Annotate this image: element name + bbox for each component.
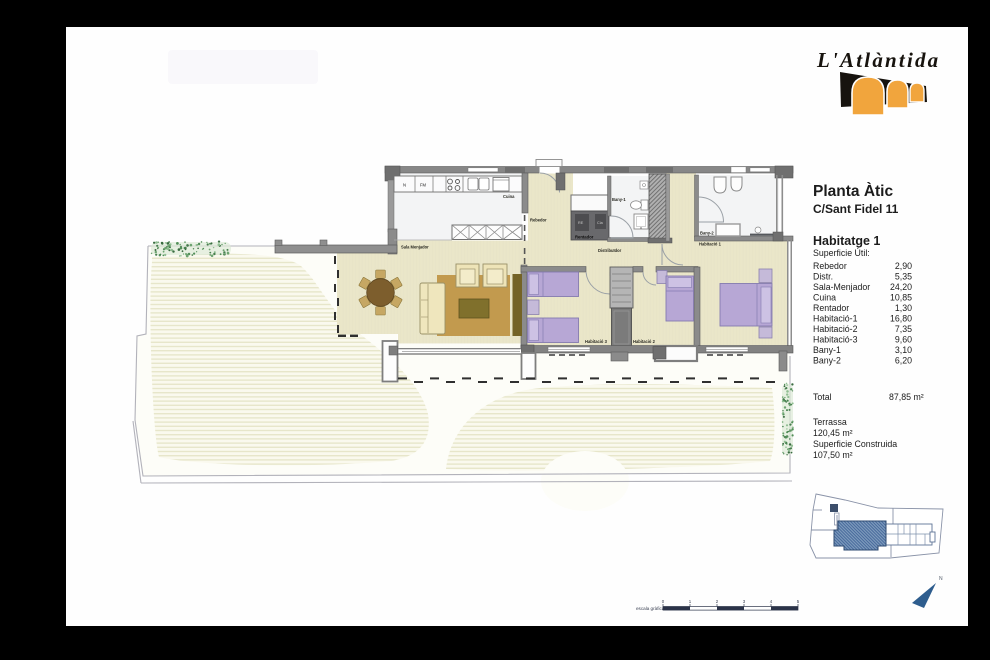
svg-text:1,30: 1,30 [895, 303, 912, 313]
svg-text:Cuina: Cuina [503, 194, 515, 199]
svg-text:6,20: 6,20 [895, 356, 912, 366]
svg-text:Cuina: Cuina [813, 293, 836, 303]
svg-text:107,50 m²: 107,50 m² [813, 450, 853, 460]
svg-text:Superficie Construida: Superficie Construida [813, 439, 897, 449]
svg-text:Rentador: Rentador [575, 235, 594, 240]
svg-text:N: N [939, 576, 943, 582]
svg-text:Planta Àtic: Planta Àtic [813, 183, 893, 200]
svg-text:Habitació-2: Habitació-2 [813, 324, 858, 334]
svg-text:N: N [403, 183, 406, 188]
svg-text:Habitació 1: Habitació 1 [699, 242, 722, 247]
svg-text:Rebedor: Rebedor [813, 261, 847, 271]
svg-text:2,90: 2,90 [895, 261, 912, 271]
svg-text:16,80: 16,80 [890, 314, 912, 324]
svg-text:87,85 m²: 87,85 m² [889, 392, 924, 402]
svg-text:C/Sant Fidel 11: C/Sant Fidel 11 [813, 202, 899, 216]
svg-text:5,35: 5,35 [895, 272, 912, 282]
svg-text:Cia: Cia [597, 221, 604, 225]
svg-text:escala gràfica: escala gràfica [636, 606, 665, 611]
svg-text:Sala-Menjador: Sala-Menjador [813, 282, 870, 292]
svg-text:Habitatge 1: Habitatge 1 [813, 234, 880, 248]
svg-text:Habitació-1: Habitació-1 [813, 314, 858, 324]
svg-text:Bany-2: Bany-2 [813, 356, 841, 366]
svg-text:Distr.: Distr. [813, 272, 833, 282]
svg-text:3,10: 3,10 [895, 345, 912, 355]
svg-text:Habitació-3: Habitació-3 [813, 335, 858, 345]
svg-text:Total: Total [813, 392, 832, 402]
svg-text:L'Atlàntida: L'Atlàntida [816, 48, 940, 72]
svg-text:Terrassa: Terrassa [813, 417, 847, 427]
svg-text:Superficie Útil:: Superficie Útil: [813, 248, 870, 258]
svg-text:RE: RE [578, 221, 584, 225]
svg-text:Rebedor: Rebedor [530, 218, 547, 223]
svg-text:24,20: 24,20 [890, 282, 912, 292]
svg-text:Habitació 2: Habitació 2 [633, 339, 656, 344]
svg-text:FM: FM [420, 183, 427, 188]
svg-text:Bany-1: Bany-1 [813, 345, 841, 355]
svg-text:Rentador: Rentador [813, 303, 849, 313]
svg-text:7,35: 7,35 [895, 324, 912, 334]
svg-text:10,85: 10,85 [890, 293, 912, 303]
svg-text:Bany-1: Bany-1 [612, 197, 626, 202]
svg-text:Bany-2: Bany-2 [700, 231, 714, 236]
svg-text:Sala Menjador: Sala Menjador [401, 245, 429, 250]
svg-text:Distribuïdor: Distribuïdor [598, 248, 622, 253]
svg-text:9,60: 9,60 [895, 335, 912, 345]
svg-text:Habitació 3: Habitació 3 [585, 339, 608, 344]
svg-text:120,45 m²: 120,45 m² [813, 428, 853, 438]
